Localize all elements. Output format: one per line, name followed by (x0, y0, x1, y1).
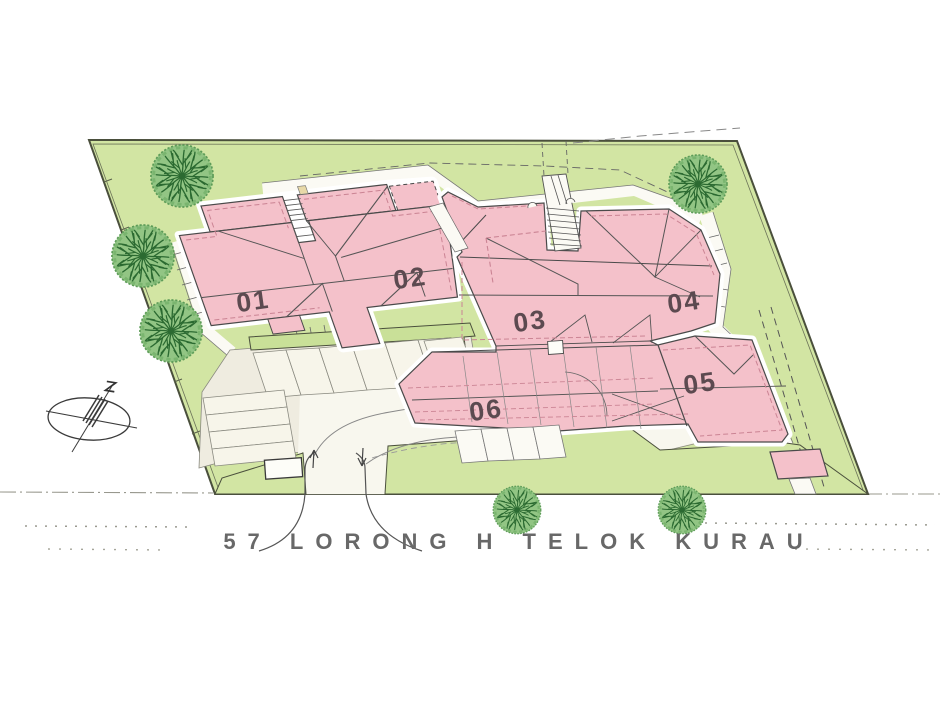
svg-text:02: 02 (391, 261, 428, 295)
svg-text:05: 05 (681, 366, 718, 400)
svg-text:06: 06 (467, 393, 504, 427)
svg-text:03: 03 (511, 304, 548, 338)
svg-text:04: 04 (665, 285, 702, 319)
svg-text:57 LORONG H TELOK KURAU: 57 LORONG H TELOK KURAU (223, 529, 814, 554)
svg-text:01: 01 (234, 284, 271, 318)
